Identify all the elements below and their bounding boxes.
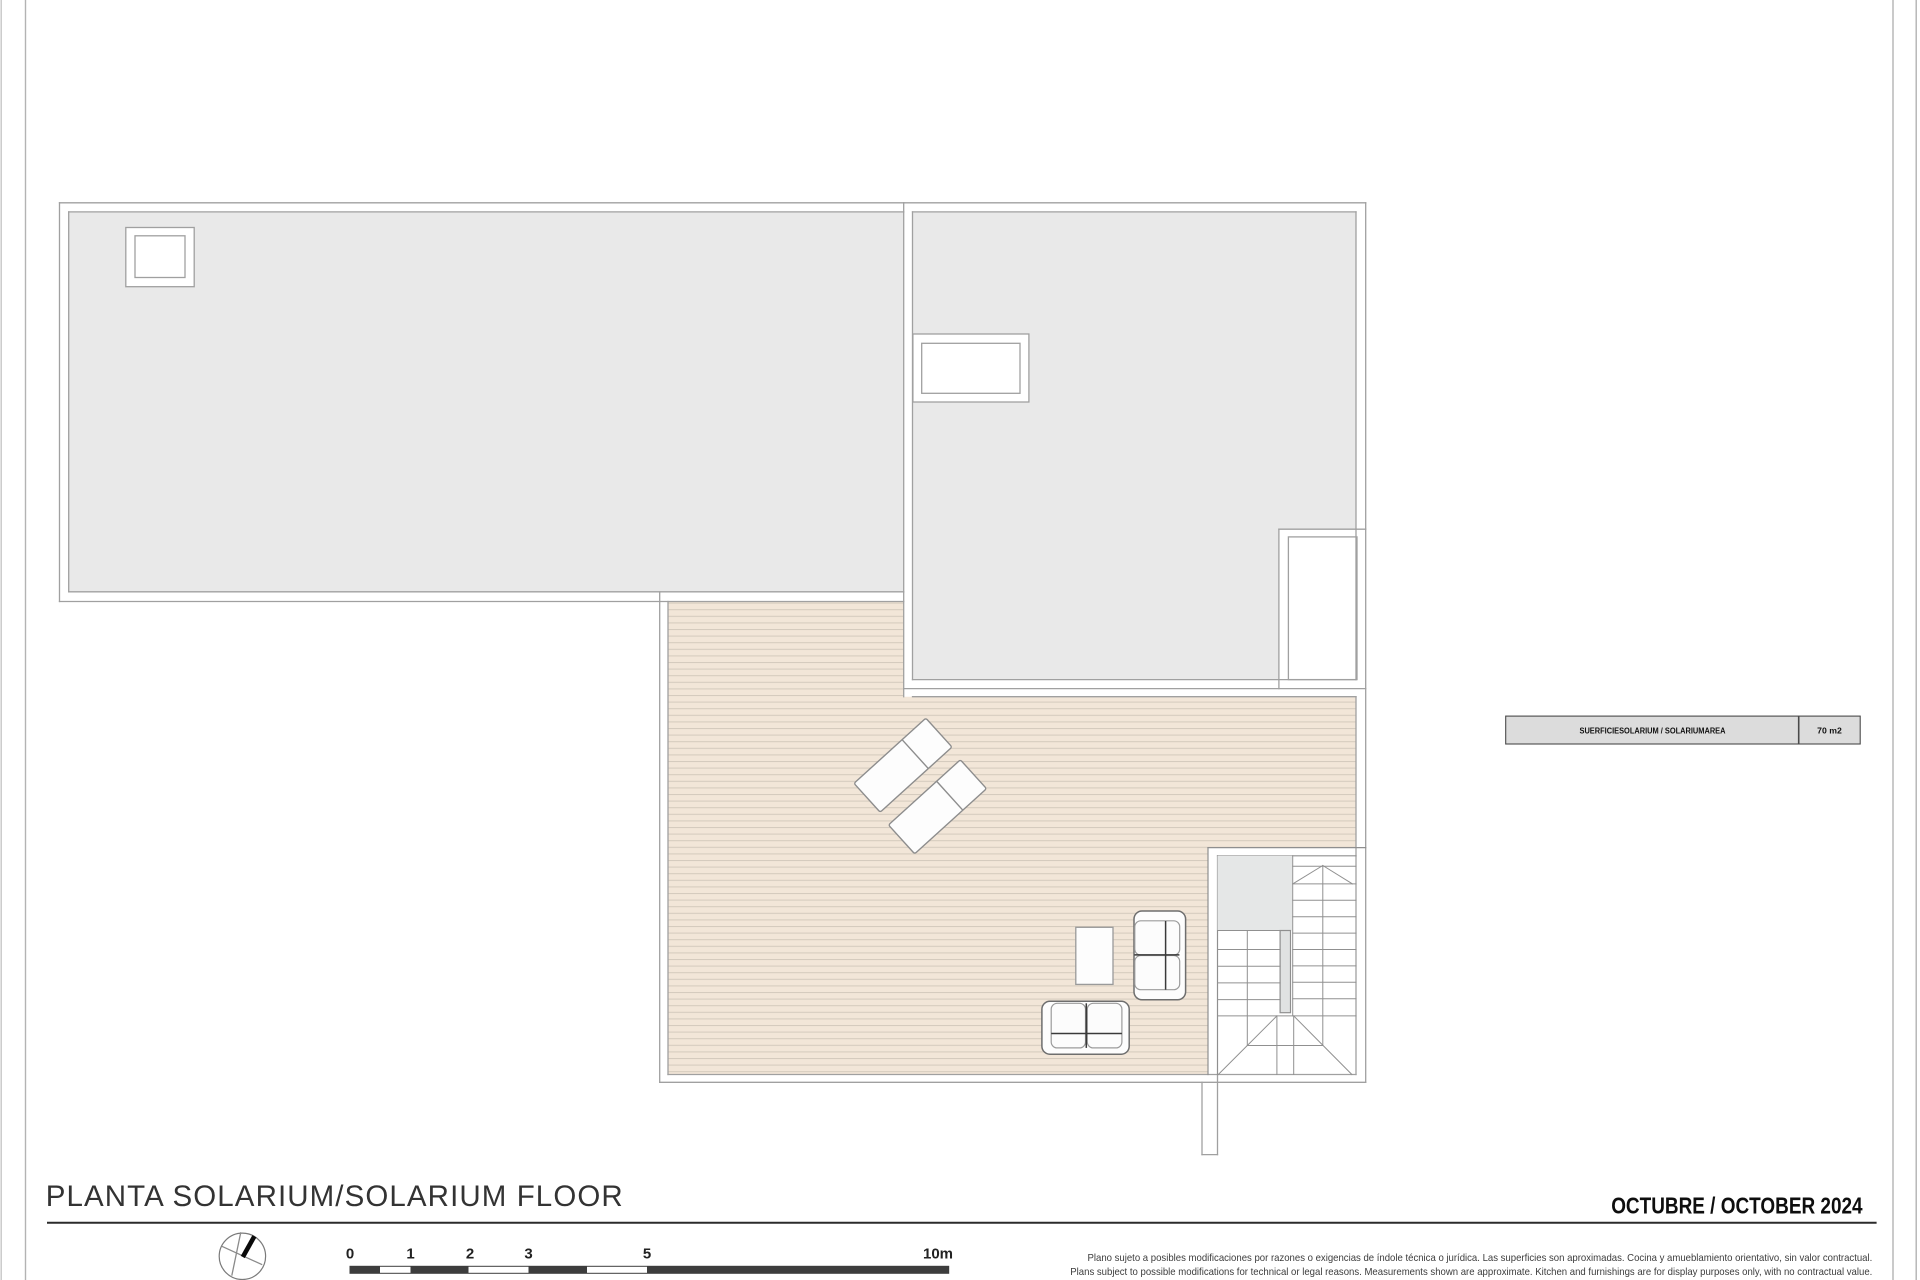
svg-text:Plans subject to possible modi: Plans subject to possible modifications … xyxy=(1070,1267,1872,1278)
svg-text:Plano sujeto a posibles modifi: Plano sujeto a posibles modificaciones p… xyxy=(1088,1253,1873,1264)
svg-text:1: 1 xyxy=(406,1246,414,1263)
svg-text:10m: 10m xyxy=(923,1246,953,1263)
svg-text:3: 3 xyxy=(524,1246,532,1263)
svg-text:OCTUBRE / OCTOBER 2024: OCTUBRE / OCTOBER 2024 xyxy=(1611,1193,1863,1219)
svg-text:70 m2: 70 m2 xyxy=(1817,725,1842,735)
svg-text:2: 2 xyxy=(466,1246,474,1263)
svg-text:5: 5 xyxy=(643,1246,651,1263)
svg-text:PLANTA SOLARIUM/SOLARIUM FLOOR: PLANTA SOLARIUM/SOLARIUM FLOOR xyxy=(46,1180,623,1213)
svg-text:SUERFICIESOLARIUM / SOLARIUMAR: SUERFICIESOLARIUM / SOLARIUMAREA xyxy=(1580,725,1727,735)
svg-text:0: 0 xyxy=(346,1246,354,1263)
